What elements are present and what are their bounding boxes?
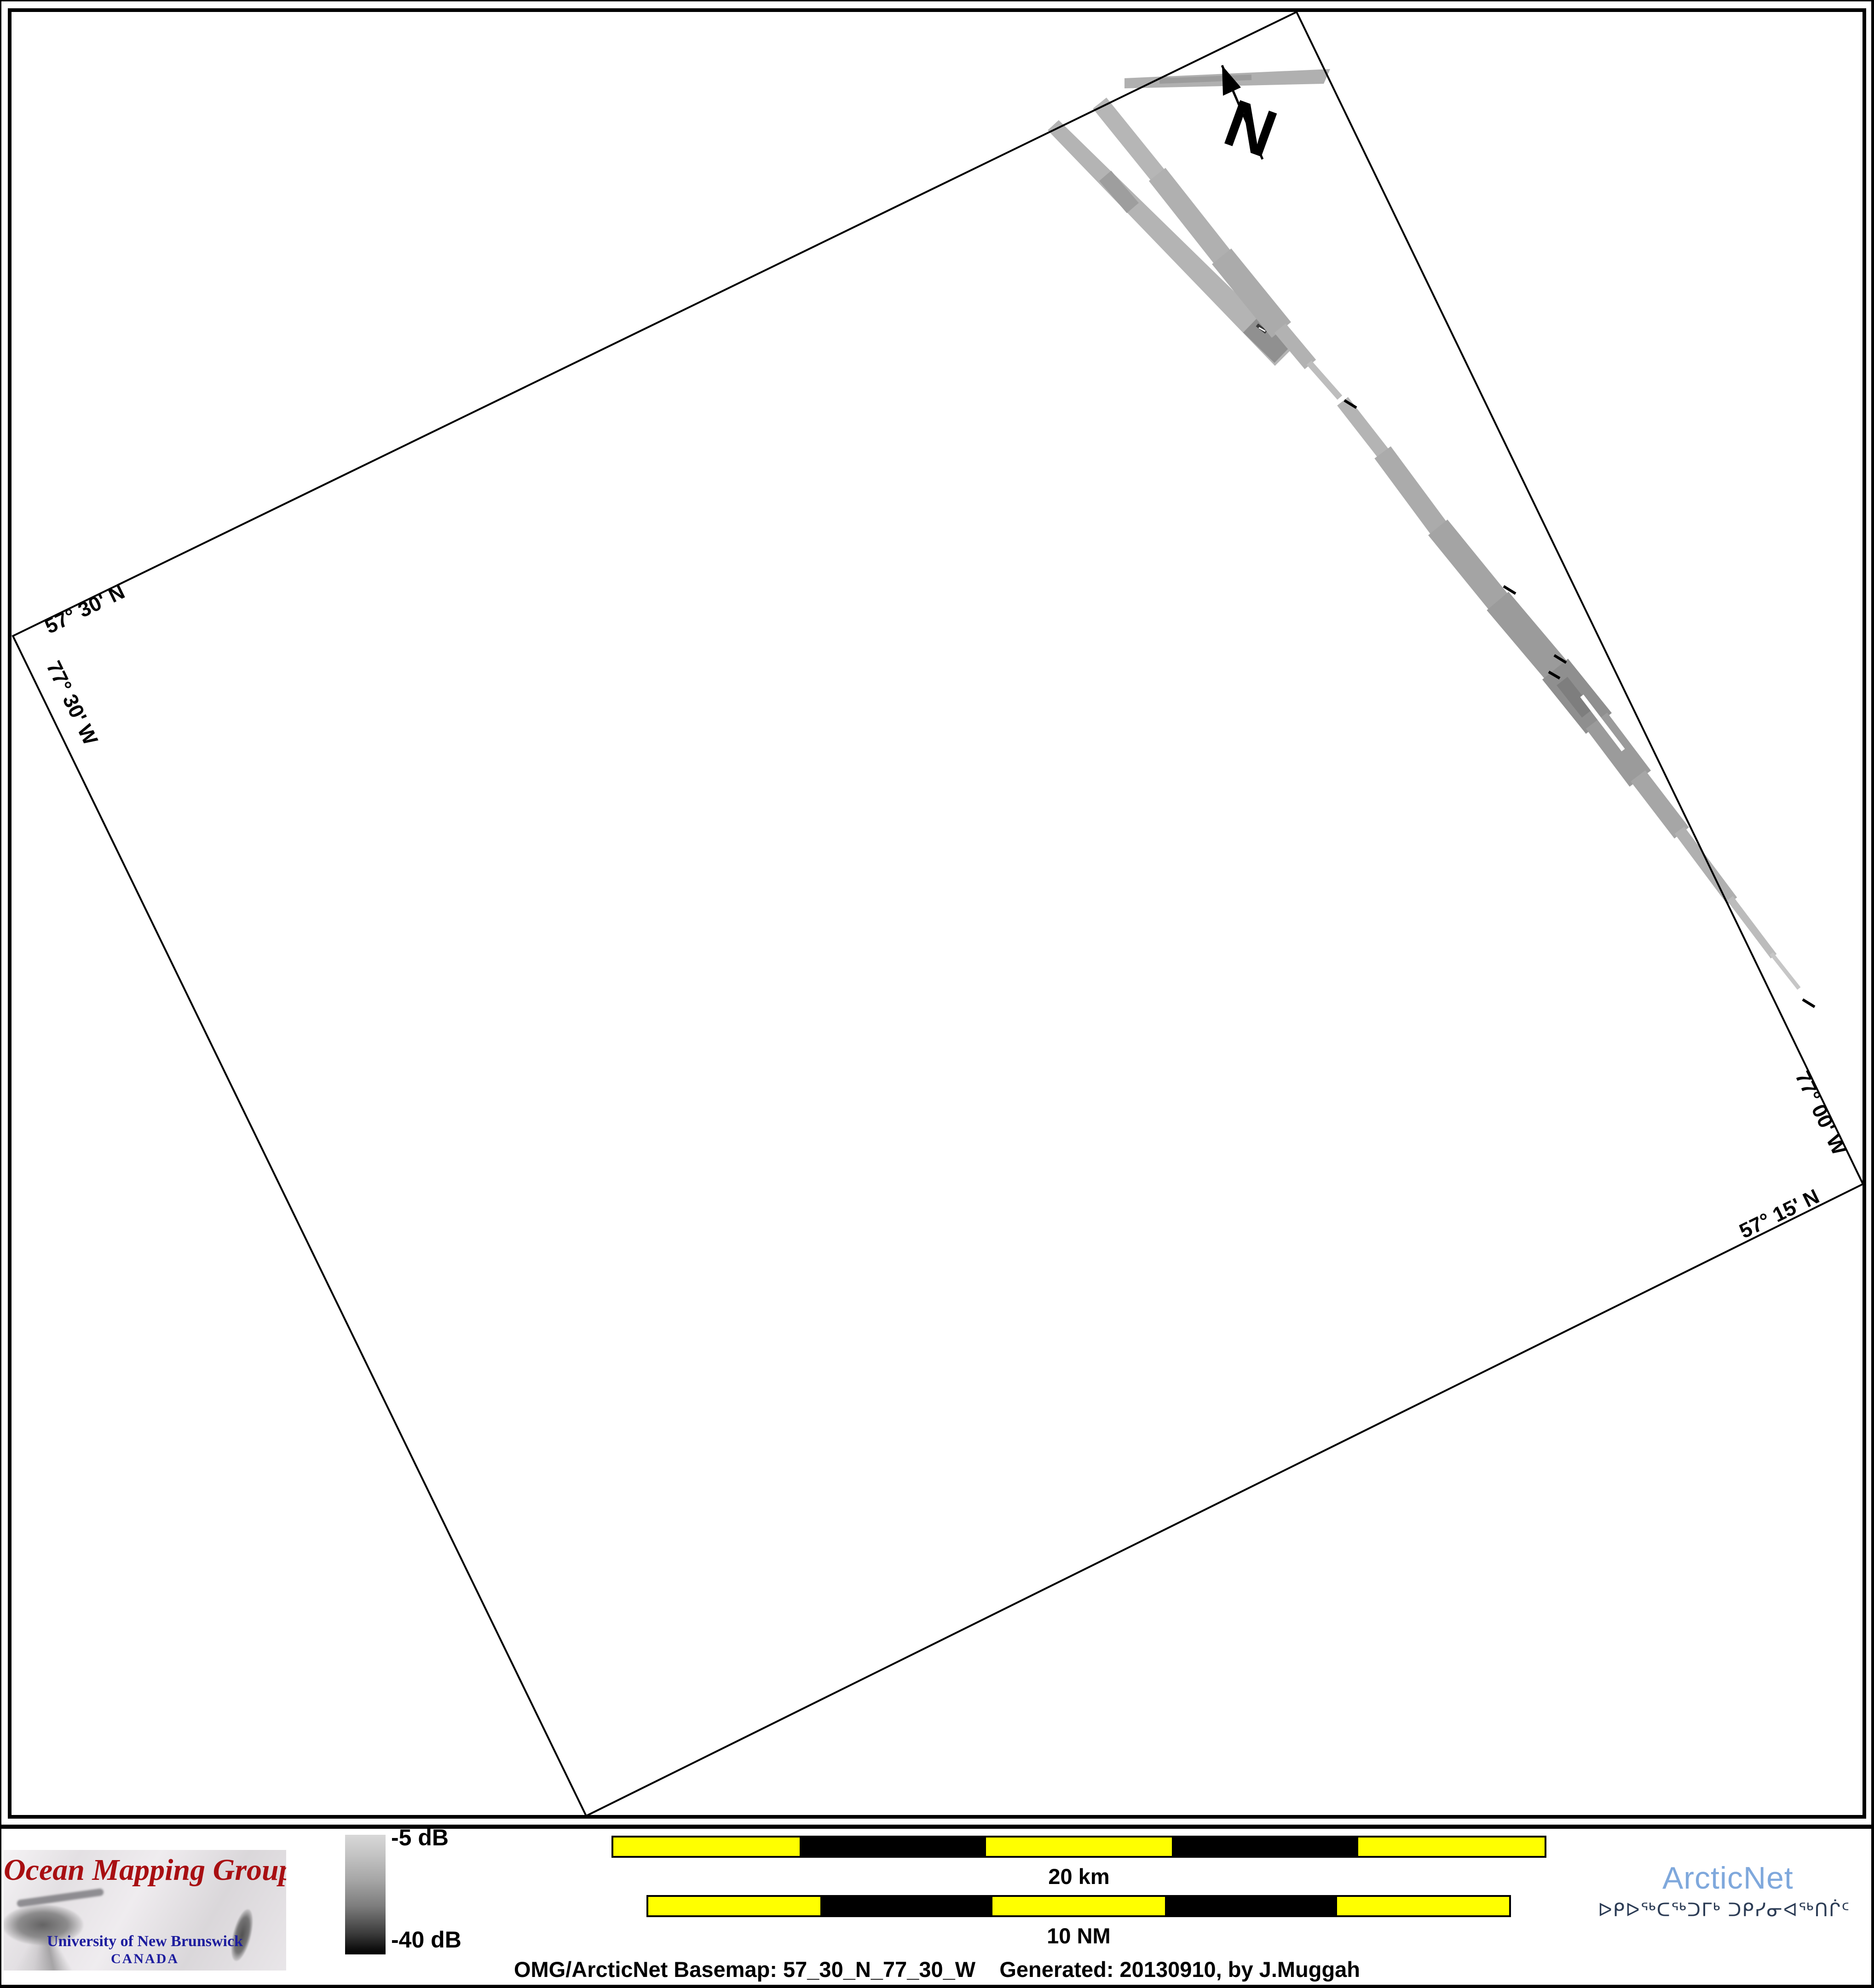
scalebar-km-label: 20 km [611,1864,1546,1889]
graticule-outline [13,12,1863,1816]
scalebar-segment [986,1838,1172,1856]
map-canvas: 57° 30' N 77° 30' W 77° 00' W 57° 15' N … [0,0,1874,1988]
label-lat-bottom: 57° 15' N [1736,1184,1823,1243]
scalebar-segment [820,1897,992,1915]
scalebar-nm-label: 10 NM [646,1923,1511,1948]
scalebar-segment [613,1838,800,1856]
scalebar-segment [1337,1897,1509,1915]
omg-logo: Ocean Mapping Group University of New Br… [4,1850,286,1971]
scalebar-segment [800,1838,986,1856]
scalebar-segment [648,1897,820,1915]
arcticnet-logo: ArcticNet [1662,1860,1793,1896]
label-lat-top: 57° 30' N [41,579,128,638]
label-lon-right: 77° 00' W [1791,1067,1851,1159]
backscatter-colorbar [345,1835,386,1954]
scalebar-segment [1172,1838,1358,1856]
scalebar-segment [1165,1897,1337,1915]
omg-university: University of New Brunswick [4,1933,286,1950]
north-arrow-n: N [1215,85,1286,172]
sonar-swath-tracks [1048,69,1815,1007]
swath-long-track [1100,103,1799,988]
arcticnet-inuktitut-text: ᐅᑭᐅᖅᑕᖅᑐᒥᒃ ᑐᑭᓯᓂᐊᖅᑎᒌᑦ [1598,1900,1850,1921]
footer-separator [0,1825,1874,1829]
swath-top-band-shade [1159,77,1251,81]
colorbar-max-label: -5 dB [391,1824,449,1851]
label-lon-left: 77° 30' W [42,657,103,749]
scalebar-km [611,1836,1546,1858]
scalebar-segment [1358,1838,1545,1856]
scalebar-nm [646,1895,1511,1917]
basemap-caption: OMG/ArcticNet Basemap: 57_30_N_77_30_W G… [0,1957,1874,1982]
omg-title: Ocean Mapping Group [4,1853,286,1888]
colorbar-min-label: -40 dB [391,1926,461,1953]
swath-left-shade [1105,176,1133,208]
scalebar-segment [992,1897,1165,1915]
